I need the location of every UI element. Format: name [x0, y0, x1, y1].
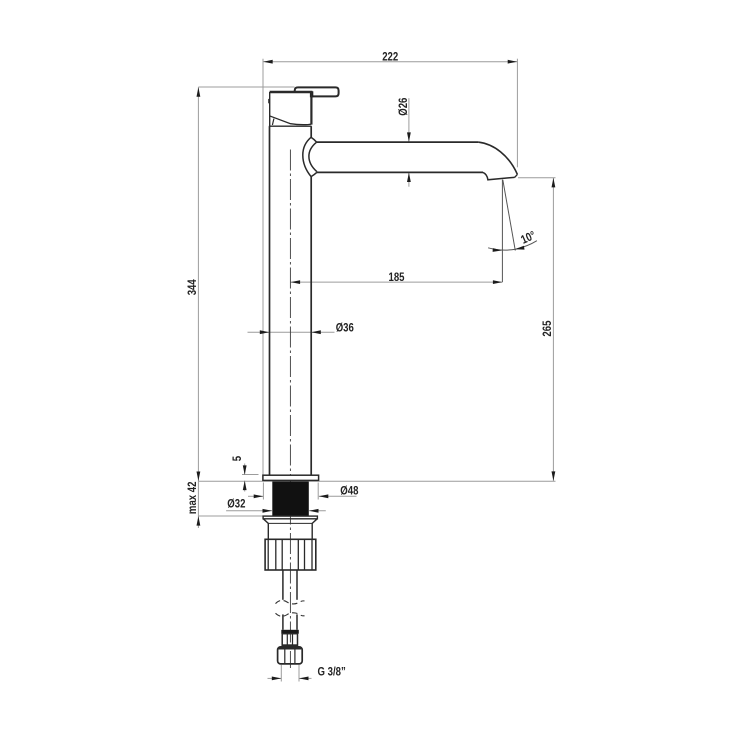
svg-text:185: 185 [388, 271, 404, 284]
svg-text:265: 265 [541, 321, 554, 337]
svg-text:Ø36: Ø36 [336, 322, 354, 335]
svg-text:Ø48: Ø48 [340, 484, 358, 497]
svg-text:G 3/8”: G 3/8” [318, 665, 346, 678]
svg-text:Ø26: Ø26 [397, 98, 410, 116]
svg-text:Ø32: Ø32 [227, 497, 245, 510]
svg-text:5: 5 [231, 456, 244, 461]
svg-text:344: 344 [186, 279, 199, 295]
svg-text:222: 222 [382, 51, 398, 64]
svg-text:max 42: max 42 [186, 482, 199, 515]
